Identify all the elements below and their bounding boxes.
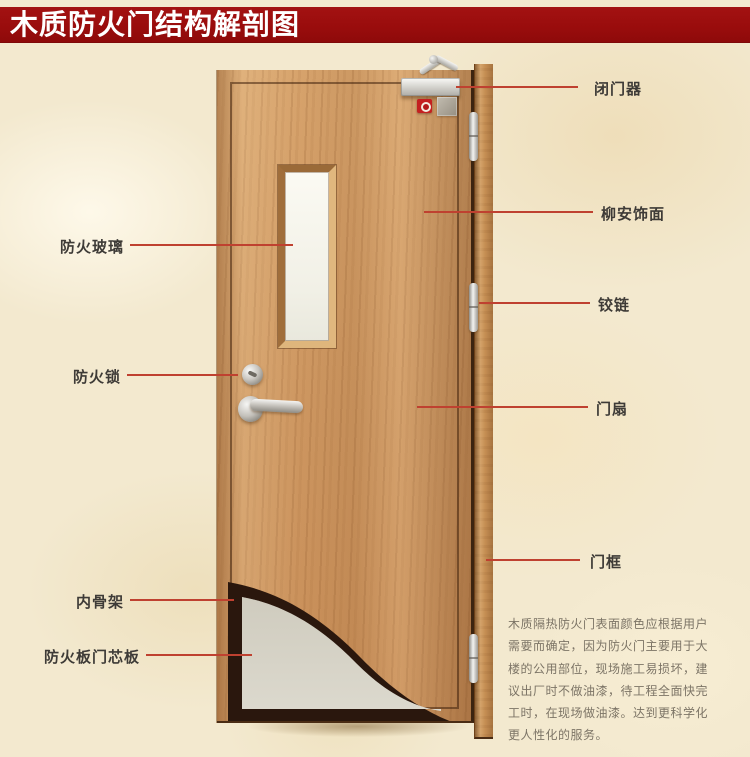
label-fire-lock: 防火锁 xyxy=(73,366,121,387)
alarm-indicator xyxy=(417,99,432,113)
description-line: 木质隔热防火门表面颜色应根据用户 xyxy=(508,613,708,635)
alarm-indicator-ring xyxy=(421,102,431,112)
poster-background: 木质防火门结构解剖图 xyxy=(0,0,750,757)
pointer-line-lauan-veneer xyxy=(424,211,593,213)
title-bar: 木质防火门结构解剖图 xyxy=(0,7,750,43)
description-line: 工时，在现场做油漆。达到更科学化 xyxy=(508,702,708,724)
description-line: 议出厂时不做油漆，待工程全面快完 xyxy=(508,680,708,702)
hinge-top xyxy=(469,112,478,161)
pointer-line-hinge xyxy=(479,302,590,304)
label-lauan-veneer: 柳安饰面 xyxy=(601,203,665,224)
hinge-bottom xyxy=(469,634,478,683)
pointer-line-core-board xyxy=(146,654,252,656)
label-door-leaf: 门扇 xyxy=(596,398,628,419)
description-line: 更人性化的服务。 xyxy=(508,724,708,746)
pointer-line-door-frame xyxy=(486,559,580,561)
pointer-line-fire-glass xyxy=(130,244,293,246)
strike-plate xyxy=(437,97,457,116)
pointer-line-fire-lock xyxy=(127,374,238,376)
label-door-frame: 门框 xyxy=(590,551,622,572)
label-hinge: 铰链 xyxy=(598,294,630,315)
door-closer-body xyxy=(401,78,460,96)
label-core-board: 防火板门芯板 xyxy=(44,646,140,667)
product-description: 木质隔热防火门表面颜色应根据用户 需要而确定，因为防火门主要用于大 楼的公用部位… xyxy=(508,613,708,747)
door-closer-arm-elbow xyxy=(429,55,438,64)
core-board-shade xyxy=(242,597,441,711)
page-title: 木质防火门结构解剖图 xyxy=(10,7,300,42)
description-line: 楼的公用部位，现场施工易损坏，建 xyxy=(508,658,708,680)
label-door-closer: 闭门器 xyxy=(594,78,642,99)
lock-thumbturn xyxy=(248,370,258,377)
pointer-line-door-leaf xyxy=(417,406,588,408)
label-fire-glass: 防火玻璃 xyxy=(60,236,124,257)
label-inner-skeleton: 内骨架 xyxy=(76,591,124,612)
pointer-line-inner-skeleton xyxy=(130,599,234,601)
pointer-line-door-closer xyxy=(456,86,578,88)
description-line: 需要而确定，因为防火门主要用于大 xyxy=(508,635,708,657)
hinge-middle xyxy=(469,283,478,332)
vision-window-frame xyxy=(278,165,336,348)
fire-lock-cylinder xyxy=(242,364,263,385)
cutaway-section xyxy=(217,70,471,721)
